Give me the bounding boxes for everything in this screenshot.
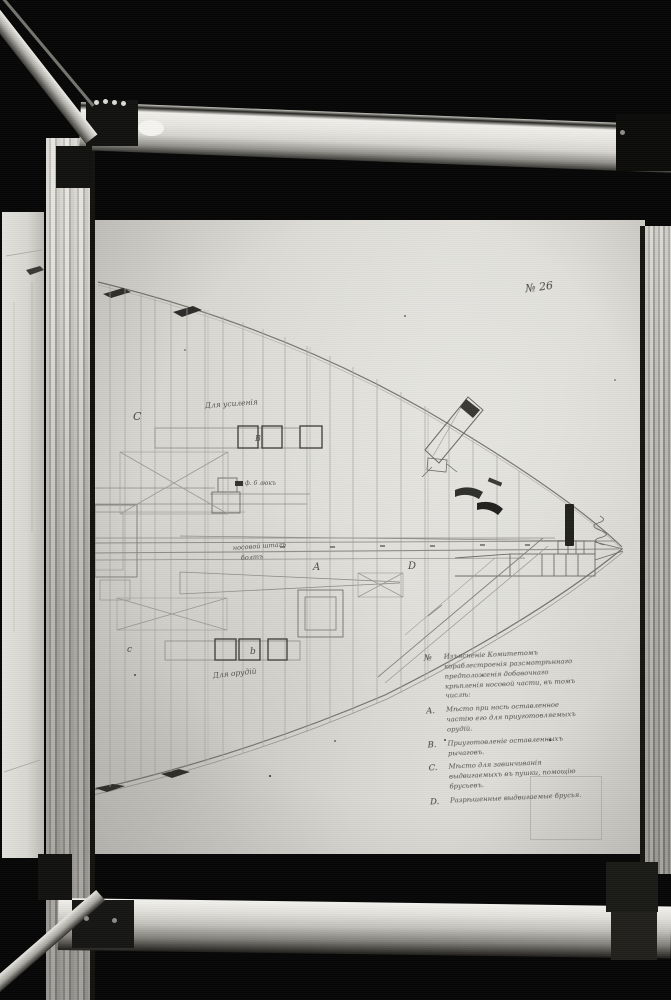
archival-photo: C B A D c b Для усиленія ф. 6 люкъ носов… — [0, 0, 671, 1000]
legend-key: A. — [426, 706, 441, 736]
letter-lower-c: c — [127, 645, 132, 655]
hull-station-marks — [95, 288, 202, 792]
letter-upper-b: B — [254, 434, 261, 443]
legend-item: D. Разрѣшенные выдвигаемые брусья. — [430, 790, 590, 807]
legend-text: Мѣсто при носѣ оставленное частію его дл… — [446, 700, 587, 736]
screw-head — [84, 916, 89, 921]
document-sheet: C B A D c b Для усиленія ф. 6 люкъ носов… — [95, 220, 645, 854]
legend-item: A. Мѣсто при носѣ оставленное частію его… — [426, 700, 587, 736]
legend-text: Разрѣшенные выдвигаемые брусья. — [450, 790, 590, 806]
legend: № Изъясненіе Комитетомъ кораблестроенія … — [424, 647, 591, 812]
screw-head — [94, 100, 99, 105]
bottom-annotation: Для орудій — [211, 666, 257, 680]
hatch-structures — [95, 478, 343, 637]
frame-clamp-right-edge — [646, 866, 671, 924]
screw-head — [620, 130, 625, 135]
legend-key: № — [424, 653, 440, 703]
screw-head — [103, 99, 108, 104]
cross-braced-frames — [117, 452, 403, 630]
diagonal-brace-top-left — [0, 2, 97, 144]
hawse-marks — [455, 478, 503, 515]
legend-text: Изъясненіе Комитетомъ кораблестроенія ра… — [444, 647, 586, 702]
corner-bracket-bottom-left — [38, 854, 72, 900]
cursive-annotations: Для усиленія ф. 6 люкъ носовой штагъ бол… — [204, 397, 288, 680]
legend-text: Приуготовленіе оставленныхъ рычаговъ. — [447, 733, 588, 759]
top-annotation: Для усиленія — [204, 397, 259, 410]
corner-bracket-top-left — [86, 100, 138, 146]
legend-item: № Изъясненіе Комитетомъ кораблестроенія … — [424, 647, 586, 703]
corner-bracket-top-left-lower — [56, 146, 92, 188]
centerline-annotation-2: болтъ — [241, 552, 265, 562]
legend-item: C. Мѣсто для завинчиванія выдвигаемыхъ в… — [428, 757, 589, 793]
letter-center-d: D — [407, 561, 416, 572]
centerline-structure — [95, 488, 619, 594]
screw-head — [121, 101, 126, 106]
legend-key: C. — [428, 763, 443, 793]
cathead — [422, 397, 483, 477]
corner-bracket-top-right — [616, 114, 671, 171]
copy-frame-top-bar — [79, 102, 671, 173]
letter-lower-b: b — [250, 647, 256, 657]
legend-item: B. Приуготовленіе оставленныхъ рычаговъ. — [427, 733, 588, 760]
copy-frame-bottom-bar — [58, 898, 671, 959]
letter-upper-c: C — [133, 410, 142, 423]
copy-frame-right-rail — [640, 226, 671, 874]
hatch-annotation: ф. 6 люкъ — [245, 480, 276, 487]
adjacent-page-strip — [2, 212, 44, 858]
screw-head — [112, 100, 117, 105]
screw-head — [112, 918, 117, 923]
legend-text: Мѣсто для завинчиванія выдвигаемыхъ въ п… — [448, 757, 589, 793]
legend-key: D. — [430, 797, 444, 808]
letter-center-a: A — [312, 562, 320, 573]
plan-letters: C B A D c b — [127, 410, 416, 657]
strip-marks — [2, 212, 44, 858]
legend-key: B. — [427, 740, 442, 760]
